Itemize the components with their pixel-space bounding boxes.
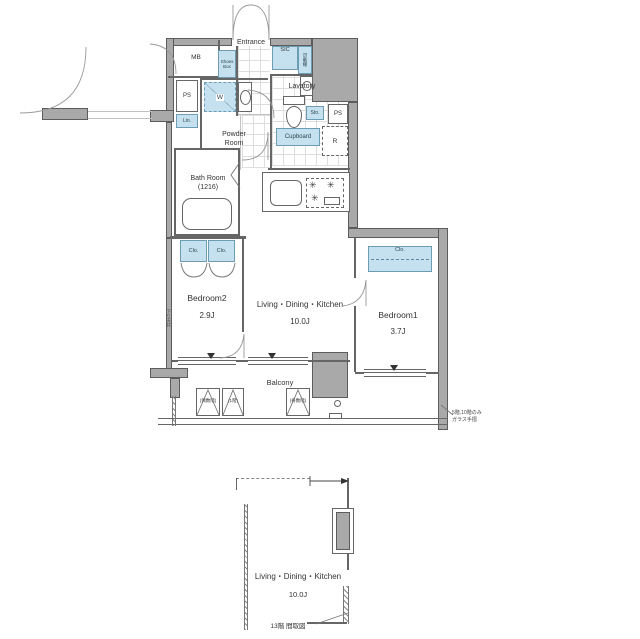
shoes-box-label-2: Box <box>223 64 231 69</box>
wall-corridor-stub <box>42 108 88 120</box>
cupboard-label: Cupboard <box>285 134 311 140</box>
bedroom1-name: Bedroom1 <box>362 310 434 321</box>
sic-label: SIC <box>272 47 298 54</box>
subplan-dash-top <box>236 478 310 479</box>
closet2a-bifold <box>181 263 207 277</box>
subplan-pillar <box>336 512 350 550</box>
ac-label-even: (偶数階) <box>197 398 219 404</box>
cupboard: Cupboard <box>276 128 320 146</box>
closet-bedroom1-track <box>371 259 429 260</box>
floor-plan: Shoes Box 可動棚 SIC Sto. Cupboard Lin. W C… <box>0 0 640 639</box>
window-bedroom1 <box>364 369 426 377</box>
ldk-name: Living・Dining・Kitchen <box>248 300 352 310</box>
entrance-label: Entrance <box>226 39 276 48</box>
ps-label: PS <box>183 93 191 99</box>
powder-line-1: Powder <box>204 131 264 140</box>
balcony-label: Balcony <box>248 378 312 387</box>
wall-bedroom2-top <box>170 236 246 239</box>
closet-bedroom2-a: Clo. <box>180 240 207 262</box>
washer-space: W <box>204 82 236 112</box>
pillar-mid-right <box>312 352 348 398</box>
bedroom2-size: 2.9J <box>172 311 242 321</box>
ac-label-first: (1階) <box>223 398 243 404</box>
wall-top-left <box>166 38 232 46</box>
mb-label: MB <box>174 54 218 62</box>
refrigerator-label: R <box>333 138 338 145</box>
lavatory-label: Lavatory <box>272 83 332 92</box>
wall-bedroom1-left-b <box>354 306 356 372</box>
powder-basin <box>238 82 252 112</box>
subplan-wall-right-b <box>347 554 349 570</box>
glass-note-line-2: ガラス手摺 <box>452 417 504 424</box>
subplan-wall-left <box>244 504 248 630</box>
glass-railing-note: 5階,10階のみ ガラス手摺 <box>452 410 504 423</box>
wall-top-right <box>270 38 312 46</box>
wall-balcony-stub2 <box>170 378 180 398</box>
corridor-door-arc <box>20 47 86 113</box>
wall-bedroom2-right <box>242 236 244 332</box>
movable-shelf-label: 可動棚 <box>302 53 308 67</box>
wall-bedroom1-top <box>348 228 448 238</box>
basin-bowl <box>240 90 251 105</box>
closet-label: Clo. <box>395 247 405 253</box>
ac-label-odd: (奇数階) <box>287 398 309 404</box>
sic-movable-shelf: 可動棚 <box>298 46 312 74</box>
bedroom2-name: Bedroom2 <box>172 293 242 304</box>
subplan-wall-right-hatch <box>343 586 349 624</box>
stove-burner-icon: ✳ <box>311 193 319 204</box>
ps-box-left: PS <box>176 80 198 112</box>
closet-label: Clo. <box>189 248 199 254</box>
storage-label: Sto. <box>311 110 320 116</box>
wall-bedroom1-left-a <box>354 238 356 278</box>
wall-powder-left <box>200 78 202 148</box>
bathtub <box>182 198 232 230</box>
storage-box: Sto. <box>306 106 324 120</box>
washer-label: W <box>216 94 224 101</box>
wall-left-middle <box>166 122 172 238</box>
toilet-tank <box>283 96 305 105</box>
bath-room-label: Bath Room (1216) <box>180 175 236 193</box>
powder-line-2: Room <box>204 140 264 149</box>
subplan-wall-right-a <box>347 478 349 510</box>
bedroom2-door-arc <box>220 334 244 358</box>
subplan-ldk-size: 10.0J <box>278 590 318 599</box>
closet2b-bifold <box>209 263 235 277</box>
corridor-line-2 <box>88 118 152 119</box>
subplan-ldk-name: Living・Dining・Kitchen <box>240 572 356 582</box>
wall-left-step <box>150 110 174 122</box>
balcony-rail-1 <box>158 418 448 419</box>
closet-label: Clo. <box>217 248 227 254</box>
window-bedroom2 <box>178 357 236 365</box>
subplan-caption: 13階 間取図 <box>260 623 316 631</box>
stove-grill <box>324 197 340 205</box>
wall-balcony-stub <box>150 368 188 378</box>
corridor-line-1 <box>88 111 152 112</box>
bedroom1-size: 3.7J <box>362 327 434 337</box>
entrance-door-arc-left <box>233 5 251 40</box>
ldk-size: 10.0J <box>280 317 320 327</box>
subplan-corner-tick <box>236 478 237 490</box>
balcony-drain <box>334 400 341 407</box>
wall-bedroom1-right <box>438 228 448 430</box>
closet-bedroom2-b: Clo. <box>208 240 235 262</box>
ps-label: PS <box>334 111 342 117</box>
wall-powder-top <box>200 78 268 80</box>
powder-room-label: Powder Room <box>204 131 264 149</box>
kitchen-sink <box>270 180 302 206</box>
linen-label: Lin. <box>183 118 191 124</box>
refrigerator-space: R <box>322 126 348 156</box>
window-ldk <box>248 357 308 365</box>
pillar-top-right <box>312 38 358 102</box>
linen-box: Lin. <box>176 114 198 128</box>
entrance-step-line <box>238 114 270 115</box>
stove-burner-icon: ✳ <box>309 180 317 191</box>
shoes-box: Shoes Box <box>218 50 236 78</box>
balcony-vent <box>329 413 342 419</box>
balcony-partition <box>172 396 176 426</box>
wall-vertical-note: 下り天井 <box>166 296 172 340</box>
wall-kitchen-top <box>268 168 350 170</box>
ps-box-right: PS <box>328 104 348 124</box>
balcony-rail-2 <box>158 424 448 425</box>
entrance-door-arc-right <box>251 5 269 40</box>
bath-line-2: (1216) <box>180 184 236 193</box>
stove-burner-icon: ✳ <box>327 180 335 191</box>
bath-line-1: Bath Room <box>180 175 236 184</box>
